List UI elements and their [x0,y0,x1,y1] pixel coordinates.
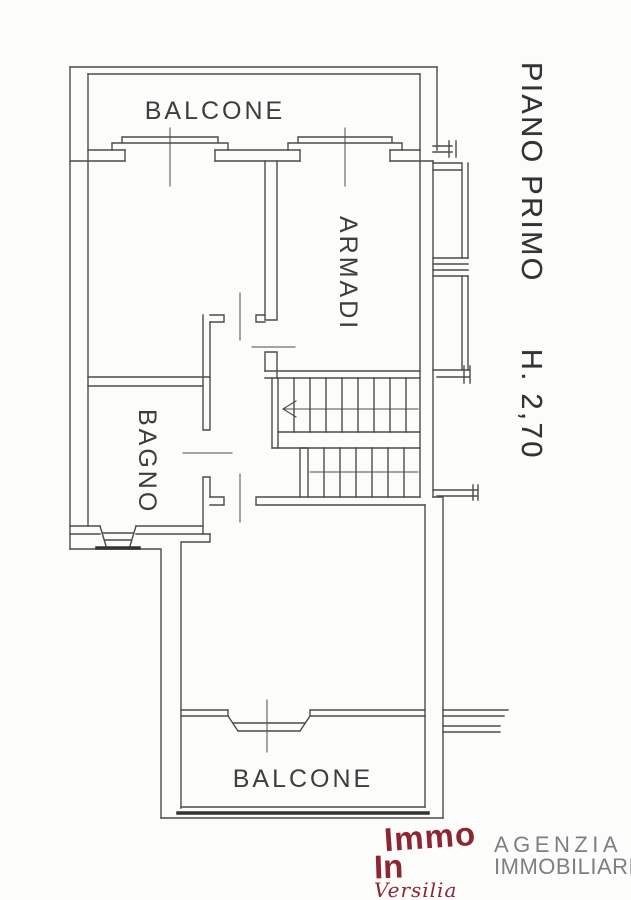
room-label-bagno: BAGNO [132,409,161,503]
door-tick-marks [170,128,345,752]
room-label-balcone-bottom: BALCONE [208,765,398,794]
balcony-door-thresholds [112,137,402,150]
agency-logo: Immo InVersilia [374,822,478,900]
floor-height-text: H. 2,70 [515,349,547,460]
stair-direction-arrow [283,401,418,472]
room-label-balcone-top: BALCONE [120,97,310,126]
north-wall [70,150,433,161]
agency-name: AGENZIA IMMOBILIARE [494,822,631,878]
right-wall [420,150,443,818]
floor-title-text: PIANO PRIMO [515,62,547,283]
lower-balcony-parapet [161,807,443,818]
staircase [272,378,420,497]
south-wall [181,710,425,731]
floor-title: PIANO PRIMOH. 2,70 [514,62,547,454]
outer-walls [70,67,437,818]
logo-line2: In [373,851,403,882]
agency-footer: Immo InVersilia AGENZIA IMMOBILIARE [374,822,626,898]
agency-line1: AGENZIA [494,834,631,856]
agency-line2: IMMOBILIARE [494,856,631,878]
floor-plan-page: BALCONE ARMADI BAGNO BALCONE PIANO PRIMO… [0,0,631,900]
neighbor-wall-stubs [433,141,508,732]
bathroom-window [97,526,139,548]
room-label-armadi: ARMADI [333,216,362,324]
